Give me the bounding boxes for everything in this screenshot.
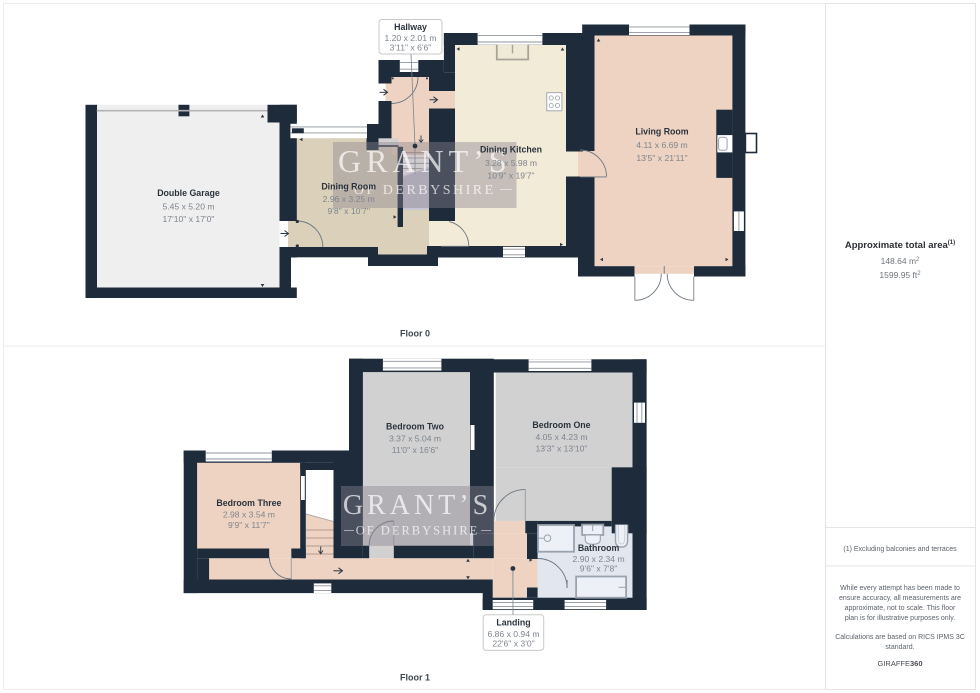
svg-text:13'5" x 21'11": 13'5" x 21'11" — [636, 153, 687, 163]
svg-text:(1) Excluding balconies and te: (1) Excluding balconies and terraces — [843, 546, 957, 553]
svg-text:3'11" x 6'6": 3'11" x 6'6" — [390, 43, 432, 53]
svg-text:ensure accuracy, all measureme: ensure accuracy, all measurements are — [839, 595, 961, 602]
svg-text:6.86 x 0.94 m: 6.86 x 0.94 m — [487, 629, 539, 639]
svg-text:Landing: Landing — [496, 618, 530, 628]
svg-text:Dining Room: Dining Room — [321, 182, 376, 192]
svg-text:9'9" x 11'7": 9'9" x 11'7" — [228, 520, 270, 530]
svg-text:Hallway: Hallway — [394, 22, 427, 32]
svg-text:Bathroom: Bathroom — [578, 543, 620, 553]
svg-text:Calculations are based on RICS: Calculations are based on RICS IPMS 3C — [835, 634, 965, 641]
svg-text:OF DERBYSHIRE: OF DERBYSHIRE — [356, 524, 480, 538]
svg-text:While every attempt has been m: While every attempt has been made to — [840, 585, 960, 592]
svg-text:GIRAFFE360: GIRAFFE360 — [877, 659, 922, 668]
svg-text:3.37 x 5.04 m: 3.37 x 5.04 m — [389, 434, 441, 444]
svg-text:9'8" x 10'7": 9'8" x 10'7" — [328, 206, 370, 216]
svg-text:Double Garage: Double Garage — [157, 188, 220, 198]
svg-text:4.05 x 4.23 m: 4.05 x 4.23 m — [535, 432, 587, 442]
svg-text:4.11 x 6.69 m: 4.11 x 6.69 m — [636, 140, 687, 150]
svg-text:22'6" x 3'0": 22'6" x 3'0" — [492, 639, 534, 649]
svg-text:Bedroom Two: Bedroom Two — [386, 422, 445, 432]
svg-text:approximate, not to scale. Thi: approximate, not to scale. This floor — [845, 605, 956, 612]
svg-text:Dining Kitchen: Dining Kitchen — [480, 145, 542, 155]
svg-text:plan is for illustrative purpo: plan is for illustrative purposes only. — [845, 615, 955, 622]
svg-text:2.90 x 2.34 m: 2.90 x 2.34 m — [573, 554, 625, 564]
svg-text:9'6" x 7'8": 9'6" x 7'8" — [580, 564, 618, 574]
svg-text:2.96 x 3.25 m: 2.96 x 3.25 m — [323, 194, 375, 204]
svg-text:2.98 x 3.54 m: 2.98 x 3.54 m — [223, 510, 275, 520]
svg-text:17'10" x 17'0": 17'10" x 17'0" — [163, 214, 215, 224]
svg-text:5.45 x 5.20 m: 5.45 x 5.20 m — [162, 202, 214, 212]
svg-text:Floor 1: Floor 1 — [400, 673, 430, 683]
svg-text:148.64 m2: 148.64 m2 — [881, 256, 920, 266]
svg-text:13'3" x 13'10": 13'3" x 13'10" — [536, 444, 588, 454]
svg-text:Living Room: Living Room — [635, 127, 688, 137]
svg-text:1599.95 ft2: 1599.95 ft2 — [879, 270, 921, 280]
svg-text:GRANT’S: GRANT’S — [343, 490, 492, 521]
svg-text:standard.: standard. — [885, 644, 914, 651]
svg-text:10'9" x 19'7": 10'9" x 19'7" — [487, 171, 534, 181]
svg-text:11'0" x 16'6": 11'0" x 16'6" — [392, 445, 439, 455]
svg-text:Bedroom One: Bedroom One — [532, 420, 590, 430]
svg-text:Bedroom Three: Bedroom Three — [216, 498, 281, 508]
svg-text:Approximate total area(1): Approximate total area(1) — [845, 240, 955, 251]
svg-text:1.20 x 2.01 m: 1.20 x 2.01 m — [384, 33, 436, 43]
svg-text:3.28 x 5.98 m: 3.28 x 5.98 m — [485, 158, 537, 168]
svg-text:Floor 0: Floor 0 — [400, 329, 430, 339]
